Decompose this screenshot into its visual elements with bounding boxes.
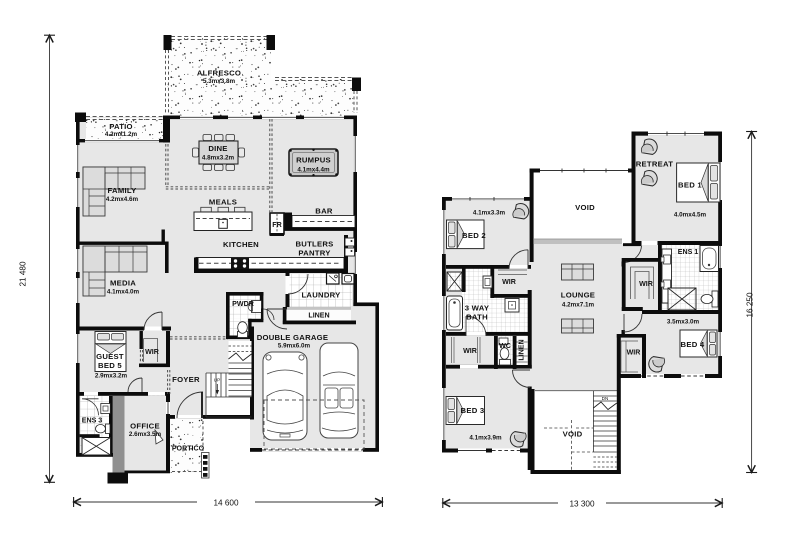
svg-text:PWDR: PWDR [232,300,254,308]
svg-text:4.2mx4.6m: 4.2mx4.6m [106,196,139,203]
svg-text:DINE: DINE [208,144,227,153]
svg-text:4.1mx3.3m: 4.1mx3.3m [473,210,506,217]
svg-text:14 600: 14 600 [213,499,238,508]
svg-text:LINEN: LINEN [518,339,526,360]
svg-text:LOUNGE: LOUNGE [561,291,595,300]
svg-text:MEDIA: MEDIA [110,279,136,288]
svg-text:BED 5: BED 5 [98,361,122,370]
svg-text:WIR: WIR [639,280,653,288]
svg-text:4.0mx4.5m: 4.0mx4.5m [674,212,707,219]
svg-text:FAMILY: FAMILY [108,186,137,195]
svg-text:BED 1: BED 1 [678,181,702,190]
svg-text:BED 2: BED 2 [462,231,486,240]
svg-text:3 WAY: 3 WAY [465,304,489,313]
svg-text:4.1mx4.4m: 4.1mx4.4m [297,167,330,174]
svg-text:VOID: VOID [563,430,583,439]
svg-text:LAUNDRY: LAUNDRY [301,291,340,300]
svg-text:4.2mx1.2m: 4.2mx1.2m [105,131,138,138]
svg-text:BED 4: BED 4 [681,340,705,349]
svg-text:FR: FR [272,221,281,229]
svg-text:BED 3: BED 3 [461,406,485,415]
svg-text:WIR: WIR [463,347,477,355]
svg-text:4.1mx4.0m: 4.1mx4.0m [107,289,140,296]
svg-text:KITCHEN: KITCHEN [223,240,259,249]
svg-text:DN: DN [602,396,609,401]
svg-text:5.3mx3.8m: 5.3mx3.8m [203,78,236,85]
svg-text:RETREAT: RETREAT [636,160,674,169]
svg-text:4.2mx7.1m: 4.2mx7.1m [562,302,595,309]
svg-text:21 480: 21 480 [19,261,28,286]
svg-text:ENS 1: ENS 1 [678,248,699,256]
svg-text:PATIO: PATIO [109,122,133,131]
svg-text:UP: UP [214,378,220,383]
svg-text:OFFICE: OFFICE [130,422,160,431]
svg-text:16 250: 16 250 [746,292,755,317]
svg-text:GUEST: GUEST [96,352,124,361]
svg-text:13 300: 13 300 [569,500,594,509]
svg-text:RUMPUS: RUMPUS [296,156,331,165]
svg-text:WIR: WIR [145,348,159,356]
svg-text:LINEN: LINEN [308,312,329,320]
svg-text:FOYER: FOYER [172,375,200,384]
svg-text:WIR: WIR [502,278,516,286]
svg-text:ALFRESCO: ALFRESCO [197,69,241,78]
svg-text:WIR: WIR [627,349,641,357]
svg-text:2.9mx3.2m: 2.9mx3.2m [95,373,128,380]
svg-text:2.6mx3.5m: 2.6mx3.5m [129,431,162,438]
svg-text:BAR: BAR [315,207,333,216]
svg-text:4.8mx3.2m: 4.8mx3.2m [202,155,235,162]
svg-text:BATH: BATH [466,313,488,322]
svg-text:BUTLERS: BUTLERS [295,240,333,249]
svg-text:ENS 3: ENS 3 [82,417,103,425]
svg-text:5.9mx6.0m: 5.9mx6.0m [278,343,311,350]
svg-text:DOUBLE GARAGE: DOUBLE GARAGE [257,333,329,342]
svg-text:MEALS: MEALS [209,198,237,207]
svg-text:WC: WC [499,342,511,350]
svg-text:PORTICO: PORTICO [172,445,205,453]
svg-text:PANTRY: PANTRY [298,249,330,258]
svg-text:VOID: VOID [575,203,595,212]
svg-text:3.5mx3.0m: 3.5mx3.0m [667,319,700,326]
svg-text:4.1mx3.9m: 4.1mx3.9m [469,435,502,442]
